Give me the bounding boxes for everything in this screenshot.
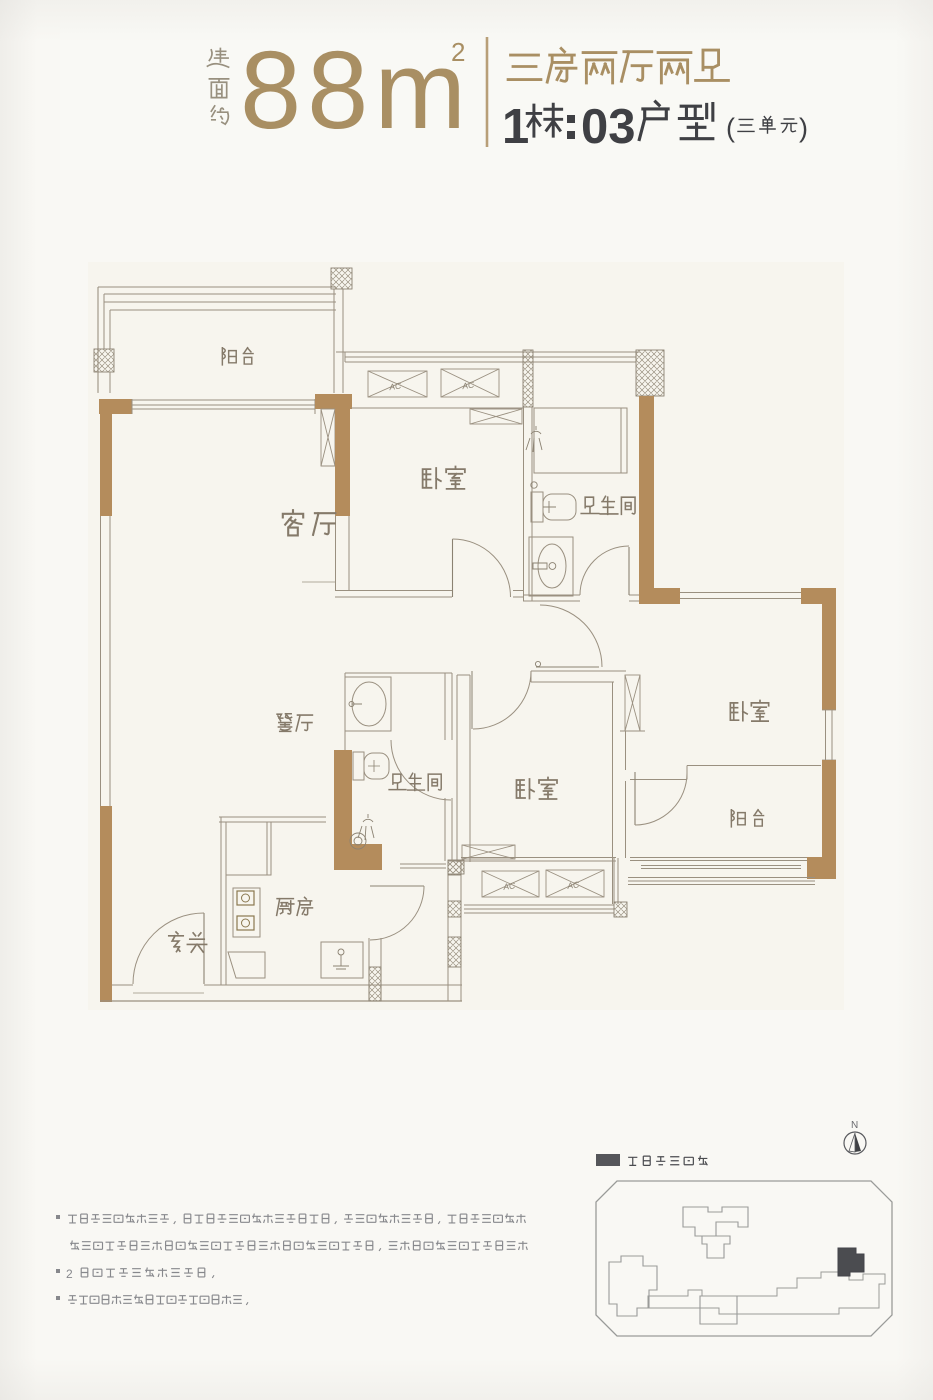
svg-text:AC: AC bbox=[566, 879, 581, 891]
svg-text:AC: AC bbox=[461, 379, 476, 391]
svg-text:N: N bbox=[851, 1120, 858, 1131]
svg-text:): ) bbox=[799, 113, 808, 143]
svg-text:(: ( bbox=[726, 113, 735, 143]
svg-text:1: 1 bbox=[502, 100, 529, 154]
svg-text:AC: AC bbox=[388, 380, 403, 392]
svg-text:AC: AC bbox=[502, 880, 517, 892]
svg-text:2: 2 bbox=[66, 1267, 73, 1281]
svg-text:2: 2 bbox=[451, 37, 465, 67]
svg-text:03: 03 bbox=[581, 100, 636, 154]
svg-text:88m: 88m bbox=[240, 29, 472, 152]
